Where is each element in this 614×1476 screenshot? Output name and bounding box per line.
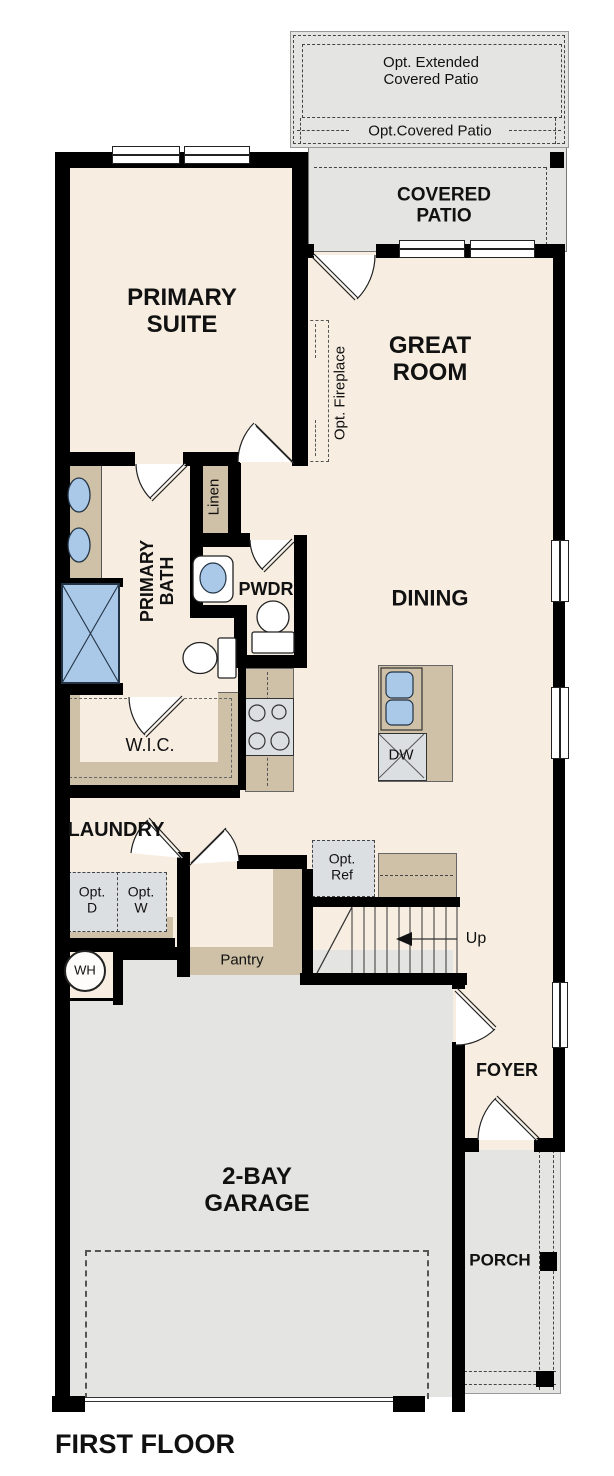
wall-below-shower: [55, 683, 123, 695]
wall-greatroom-top-2: [376, 244, 400, 258]
wall-linen-left: [190, 463, 203, 535]
wall-suite-right: [292, 152, 308, 466]
wall-pwdr-right: [294, 535, 307, 666]
wall-pantry-top: [237, 855, 307, 869]
powder-label: PWDR: [239, 579, 294, 599]
ref-counter-dash: [380, 875, 453, 877]
garage-door: [85, 1397, 393, 1402]
wall-right-1: [553, 244, 565, 540]
wall-garage-top-mid: [122, 947, 177, 960]
porch-area: [460, 1150, 561, 1394]
opt-covered-patio-dash-left: [297, 130, 349, 132]
primary-suite-label: PRIMARY SUITE: [127, 285, 237, 339]
opt-ref-label: Opt. Ref: [329, 851, 355, 882]
wall-left-exterior: [55, 152, 70, 1412]
primary-suite-window-2: [184, 146, 250, 164]
covered-patio-label: COVERED PATIO: [397, 185, 491, 228]
wall-garage-right-top: [452, 985, 465, 989]
porch-post-bottom: [536, 1371, 554, 1387]
wall-linen-right: [228, 463, 241, 535]
wall-stairs-top: [307, 897, 460, 907]
stairs-up-label: Up: [466, 930, 486, 948]
laundry-label: LAUNDRY: [67, 819, 164, 841]
wall-wh-bottom: [58, 998, 113, 1001]
opt-fireplace-label: Opt. Fireplace: [333, 346, 350, 440]
garage-label: 2-BAY GARAGE: [204, 1164, 309, 1218]
opt-covered-patio-dash-right: [509, 130, 561, 132]
water-heater-label: WH: [74, 964, 96, 979]
dishwasher-label: DW: [389, 748, 414, 765]
wall-below-vanity: [55, 578, 123, 587]
opt-extended-patio-label: Opt. Extended Covered Patio: [383, 55, 479, 89]
primary-suite-window-1: [112, 146, 180, 164]
opt-dryer-label: Opt. D: [79, 884, 105, 915]
wall-right-3: [553, 756, 565, 982]
great-room-window-2: [470, 240, 535, 258]
opt-washer-label: Opt. W: [128, 884, 154, 915]
wall-pwdr-left: [190, 535, 203, 613]
covered-patio-dash-top: [314, 167, 546, 169]
primary-bath-label: PRIMARY BATH: [137, 540, 177, 622]
wall-garage-corner-right: [393, 1396, 425, 1412]
patio-post: [550, 152, 564, 168]
wic-label: W.I.C.: [126, 735, 175, 755]
opt-fireplace-inner-top: [315, 324, 317, 358]
wall-stairs-bottom: [300, 973, 467, 985]
opt-covered-patio-label: Opt.Covered Patio: [368, 124, 491, 141]
wall-stairs-left: [302, 869, 313, 979]
pantry-floor: [188, 860, 273, 947]
wall-right-4: [553, 1046, 565, 1138]
plan-title: FIRST FLOOR: [55, 1429, 235, 1460]
linen-label: Linen: [207, 479, 224, 516]
opt-fireplace-outline: [305, 320, 329, 462]
porch-label: PORCH: [469, 1250, 530, 1269]
wall-greatroom-top-1: [300, 244, 314, 258]
wall-wic-right: [238, 660, 246, 790]
foyer-label: FOYER: [476, 1060, 538, 1080]
opt-fireplace-inner-bottom: [315, 420, 317, 456]
floor-plan: Opt. Extended Covered Patio Opt.Covered …: [0, 0, 614, 1476]
opt-covered-patio-tick-left: [300, 118, 302, 144]
covered-patio-dash-right: [546, 167, 548, 250]
great-room-window-right: [551, 540, 569, 602]
great-room-window-1: [399, 240, 465, 258]
wall-foyer-bottom-2: [534, 1138, 565, 1152]
wall-right-2: [553, 599, 565, 687]
porch-post-top: [540, 1252, 557, 1271]
wall-garage-right: [452, 1042, 465, 1412]
pantry-label: Pantry: [220, 953, 263, 970]
wall-pantry-left: [177, 852, 190, 977]
dining-window-right: [551, 687, 569, 759]
great-room-label: GREAT ROOM: [389, 333, 471, 387]
foyer-window-right: [552, 982, 568, 1048]
garage-door-outline: [85, 1250, 429, 1399]
opt-covered-patio-tick-right: [555, 118, 557, 144]
interior-floor: [55, 152, 565, 985]
stove: [243, 698, 294, 756]
wall-wic-bottom: [55, 785, 240, 798]
dining-label: DINING: [392, 587, 469, 612]
wall-suite-bottom-1: [55, 452, 135, 466]
wall-garage-corner-left: [52, 1396, 85, 1412]
wall-top-exterior: [55, 152, 305, 168]
